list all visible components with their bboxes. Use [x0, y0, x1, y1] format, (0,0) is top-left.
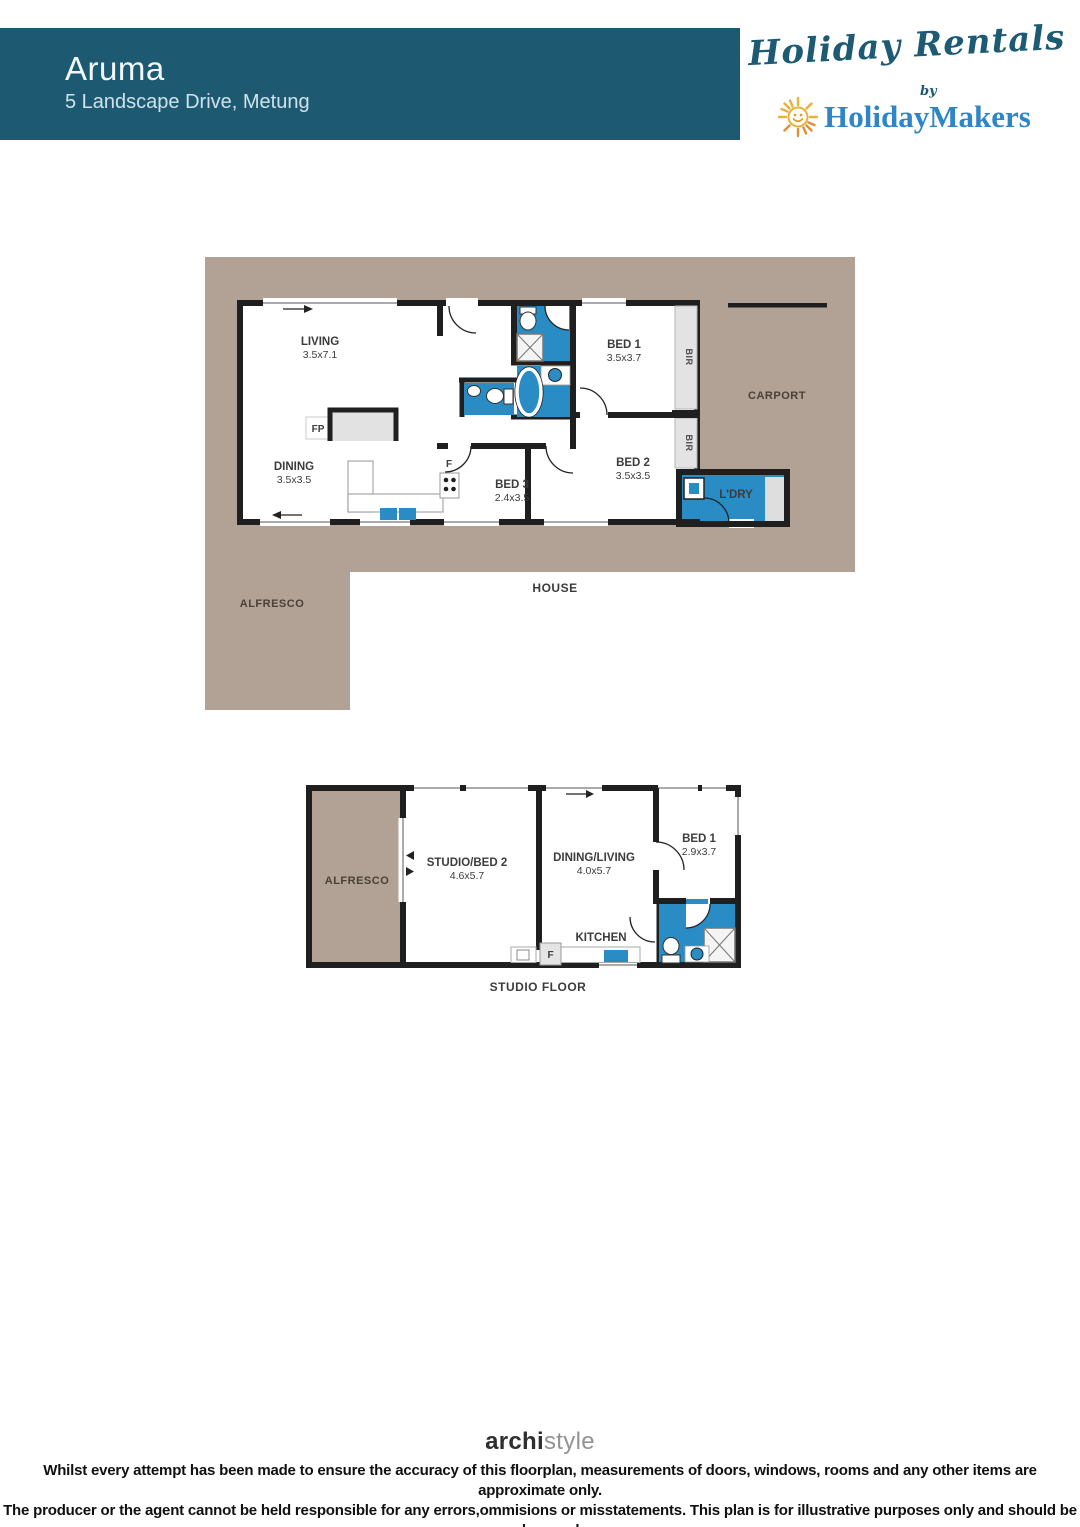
- sun-smiley-icon: [777, 96, 819, 138]
- toilet-icon: [663, 938, 679, 955]
- studio-kitchen-label: KITCHEN: [575, 932, 626, 944]
- sink-icon: [380, 508, 397, 520]
- brand-name-text: HolidayMakers: [824, 99, 1031, 135]
- toilet-icon: [504, 389, 513, 404]
- house-floorplan: BIR BIR: [200, 250, 860, 715]
- property-title: Aruma: [65, 50, 165, 88]
- carport-edge-line: [728, 303, 827, 308]
- bathtub-icon: [517, 369, 541, 415]
- studio-bed2-label: STUDIO/BED 2: [427, 857, 508, 869]
- basin-icon: [549, 369, 562, 382]
- studio-floorplan: F STUDIO/BED 2 4.6x5.7 DINING/LIVING 4.0…: [300, 775, 760, 1000]
- studio-dining-living-label: DINING/LIVING: [553, 852, 635, 864]
- studio-fridge-label: F: [547, 950, 553, 961]
- bed3-dims: 2.4x3.5: [495, 492, 530, 504]
- bed2-label: BED 2: [616, 457, 650, 469]
- dining-dims: 3.5x3.5: [277, 474, 312, 486]
- wc-room: [464, 383, 514, 415]
- bed3-label: BED 3: [495, 479, 529, 491]
- bed1-dims: 3.5x3.7: [607, 352, 642, 364]
- studio-dining-living-dims: 4.0x5.7: [577, 865, 612, 877]
- studio-alfresco-label: ALFRESCO: [325, 875, 390, 887]
- alfresco-label: ALFRESCO: [240, 598, 305, 610]
- basin-icon: [468, 386, 481, 397]
- dining-label: DINING: [274, 461, 314, 473]
- brand-logo: Holiday Rentals by: [748, 20, 1060, 138]
- studio-bed1-dims: 2.9x3.7: [682, 846, 717, 858]
- studio-floor-caption: STUDIO FLOOR: [490, 980, 587, 994]
- house-caption: HOUSE: [532, 581, 577, 595]
- disclaimer-line-2: The producer or the agent cannot be held…: [0, 1501, 1080, 1527]
- bed1-label: BED 1: [607, 339, 641, 351]
- studio-bathroom: [659, 899, 735, 963]
- bathroom-main: [517, 306, 570, 361]
- built-in-robes: BIR BIR: [672, 306, 700, 468]
- disclaimer-text: Whilst every attempt has been made to en…: [0, 1461, 1080, 1527]
- basin-icon: [691, 948, 703, 960]
- bed2-dims: 3.5x3.5: [616, 470, 651, 482]
- disclaimer-line-1: Whilst every attempt has been made to en…: [0, 1461, 1080, 1501]
- studio-bed2-dims: 4.6x5.7: [450, 870, 485, 882]
- studio-bed1-label: BED 1: [682, 833, 716, 845]
- bathroom-ensuite: [515, 366, 570, 417]
- bir-label-1: BIR: [684, 349, 694, 366]
- sink-icon: [604, 950, 628, 962]
- brand-name-row: HolidayMakers: [748, 96, 1060, 138]
- living-label: LIVING: [301, 336, 339, 348]
- fridge-label: F: [446, 459, 452, 470]
- archistyle-logo-style: style: [544, 1428, 595, 1455]
- brand-script-text: Holiday Rentals: [747, 18, 1061, 74]
- laundry-label: L'DRY: [719, 489, 753, 501]
- property-address: 5 Landscape Drive, Metung: [65, 91, 310, 114]
- archistyle-logo-archi: archi: [485, 1428, 544, 1455]
- carport-label: CARPORT: [748, 390, 806, 402]
- bir-label-2: BIR: [684, 435, 694, 452]
- floorplan-page: Aruma 5 Landscape Drive, Metung Holiday …: [0, 0, 1080, 1527]
- stove-icon: [440, 473, 459, 498]
- fireplace-label: FP: [312, 424, 325, 435]
- living-dims: 3.5x7.1: [303, 349, 338, 361]
- archistyle-logo: archistyle: [0, 1428, 1080, 1456]
